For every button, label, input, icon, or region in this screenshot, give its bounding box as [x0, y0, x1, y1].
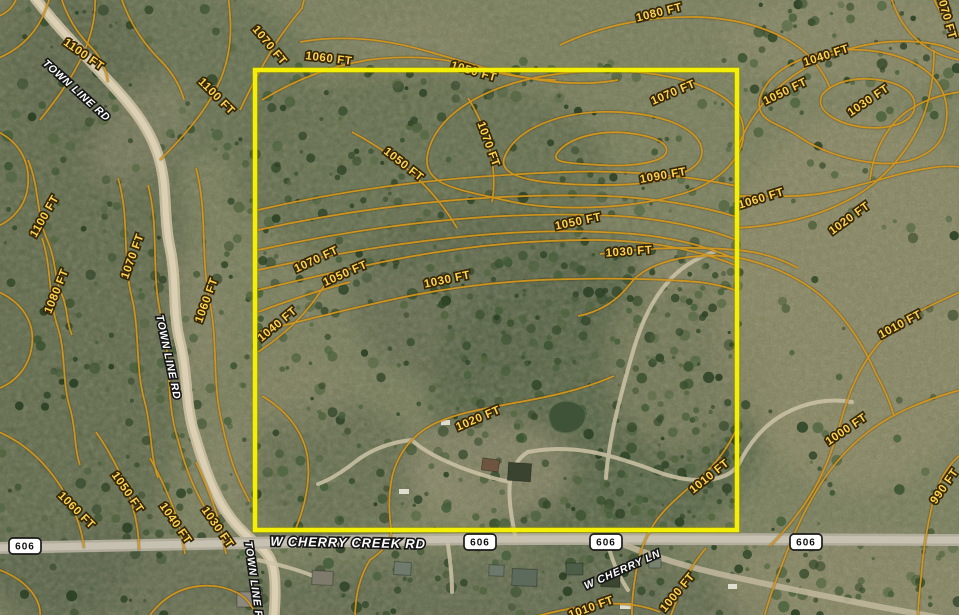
tree [158, 381, 165, 388]
tree [286, 484, 293, 491]
tree [458, 397, 467, 406]
tree [635, 496, 644, 505]
tree [535, 315, 540, 320]
tree [615, 509, 625, 519]
tree [126, 455, 130, 459]
tree [156, 395, 164, 403]
tree [711, 405, 715, 409]
tree [324, 90, 329, 95]
tree [744, 88, 748, 92]
tree [408, 120, 414, 126]
tree [396, 412, 400, 416]
tree [361, 349, 368, 356]
tree [438, 300, 446, 308]
tree [571, 507, 575, 511]
tree [514, 294, 519, 299]
tree [159, 276, 167, 284]
tree [810, 16, 819, 25]
tree [592, 352, 599, 359]
tree [287, 181, 292, 186]
tree [708, 513, 715, 520]
tree [827, 482, 832, 487]
tree [359, 404, 364, 409]
tree [401, 502, 404, 505]
tree [685, 185, 689, 189]
tree [728, 331, 731, 334]
tree [414, 495, 423, 504]
tree [380, 161, 384, 165]
tree [808, 221, 817, 230]
tree [816, 578, 827, 589]
tree [4, 241, 7, 244]
tree [810, 461, 813, 464]
tree [633, 322, 639, 328]
tree [514, 423, 520, 429]
trailer [399, 489, 409, 494]
tree [222, 152, 230, 160]
tree [368, 148, 374, 154]
tree [529, 338, 538, 347]
tree [140, 319, 150, 329]
tree [807, 159, 814, 166]
tree [319, 382, 326, 389]
tree [510, 586, 521, 597]
tree [619, 554, 622, 557]
tree [379, 513, 390, 524]
tree [147, 514, 153, 520]
route-shield-number: 606 [796, 538, 816, 549]
tree [120, 595, 127, 602]
tree [33, 201, 37, 205]
tree [547, 139, 554, 146]
tree [631, 505, 641, 515]
tree [350, 203, 355, 208]
tree [711, 544, 717, 550]
tree [319, 117, 323, 121]
tree [702, 446, 710, 454]
tree [809, 451, 818, 460]
tree [245, 502, 249, 506]
tree [65, 298, 75, 308]
tree [714, 101, 717, 104]
tree [923, 54, 930, 61]
tree [424, 492, 428, 496]
tree [41, 515, 48, 522]
tree [394, 587, 401, 594]
tree [224, 241, 234, 251]
tree [411, 511, 421, 521]
tree [484, 269, 491, 276]
tree [552, 325, 562, 335]
tree [750, 84, 759, 93]
tree [697, 99, 707, 109]
tree [799, 569, 809, 579]
tree [143, 529, 149, 535]
tree [793, 24, 797, 28]
tree [615, 488, 624, 497]
tree [717, 499, 722, 504]
tree [456, 407, 459, 410]
tree [819, 162, 826, 169]
tree [596, 191, 607, 202]
tree [224, 417, 232, 425]
tree [129, 599, 132, 602]
tree [393, 264, 398, 269]
tree [338, 412, 345, 419]
map-viewport[interactable]: 1100 FT1100 FT1070 FT1060 FT1050 FT1080 … [0, 0, 959, 615]
tree [592, 253, 596, 257]
tree [479, 587, 487, 595]
tree [559, 176, 565, 182]
tree [284, 195, 292, 203]
tree [540, 251, 547, 258]
tree [661, 360, 666, 365]
tree [338, 517, 344, 523]
tree [441, 503, 451, 513]
tree [348, 152, 355, 159]
tree [817, 522, 820, 525]
tree [930, 111, 939, 120]
tree [780, 30, 783, 33]
tree [708, 410, 713, 415]
tree [193, 271, 200, 278]
tree [224, 251, 230, 257]
tree [518, 314, 525, 321]
tree [467, 293, 473, 299]
tree [692, 427, 700, 435]
tree [28, 112, 37, 121]
tree [530, 245, 535, 250]
tree [560, 242, 565, 247]
tree [701, 495, 706, 500]
tree [695, 291, 703, 299]
trailer [728, 584, 737, 589]
tree [496, 521, 501, 526]
tree [393, 445, 397, 449]
tree [100, 205, 107, 212]
tree [476, 399, 485, 408]
tree [744, 546, 749, 551]
route-shield: 606 [9, 538, 41, 554]
tree [687, 272, 692, 277]
tree [437, 112, 447, 122]
tree [633, 365, 640, 372]
tree [656, 578, 664, 586]
tree [114, 21, 117, 24]
tree [383, 197, 389, 203]
tree [56, 369, 64, 377]
tree [803, 553, 808, 558]
tree [400, 301, 408, 309]
tree [945, 216, 952, 223]
tree [338, 106, 347, 115]
tree [451, 81, 461, 91]
tree [398, 173, 405, 180]
tree [872, 557, 875, 560]
tree [328, 407, 338, 417]
tree [109, 24, 113, 28]
tree [649, 202, 652, 205]
tree [49, 563, 56, 570]
tree [712, 272, 719, 279]
tree [646, 355, 650, 359]
tree [481, 356, 489, 364]
tree [614, 339, 620, 345]
tree [532, 380, 542, 390]
building [489, 565, 504, 577]
tree [120, 229, 129, 238]
building [394, 562, 412, 576]
tree [788, 9, 793, 14]
tree [309, 362, 313, 366]
tree [130, 399, 134, 403]
tree [738, 53, 748, 63]
tree [708, 304, 717, 313]
tree [718, 288, 725, 295]
tree [416, 402, 421, 407]
tree [572, 360, 577, 365]
tree [206, 383, 216, 393]
tree [241, 383, 247, 389]
tree [408, 578, 413, 583]
route-shield-number: 606 [470, 538, 490, 549]
tree [518, 251, 528, 261]
tree [185, 101, 190, 106]
tree [627, 422, 637, 432]
tree [31, 191, 34, 194]
tree [702, 265, 707, 270]
tree [362, 272, 372, 282]
tree [768, 409, 772, 413]
tree [441, 311, 449, 319]
tree [234, 202, 245, 213]
tree [501, 551, 511, 561]
tree [329, 172, 333, 176]
tree [462, 341, 471, 350]
tree [862, 168, 868, 174]
tree [627, 502, 631, 506]
building [312, 571, 333, 586]
tree [138, 293, 145, 300]
tree [467, 429, 475, 437]
tree [588, 305, 594, 311]
tree [0, 558, 4, 562]
tree [651, 149, 658, 156]
tree [597, 496, 606, 505]
tree [881, 225, 886, 230]
tree [626, 443, 637, 454]
tree [92, 118, 96, 122]
tree [373, 572, 382, 581]
tree [558, 596, 562, 600]
tree [722, 58, 727, 63]
tree [613, 445, 620, 452]
tree [189, 334, 198, 343]
tree [817, 466, 822, 471]
tree [134, 462, 139, 467]
tree [176, 488, 186, 498]
tree [671, 294, 680, 303]
tree [609, 173, 617, 181]
tree [522, 82, 527, 87]
tree [522, 293, 525, 296]
tree [298, 132, 307, 141]
tree [85, 117, 94, 126]
tree [665, 312, 670, 317]
tree [552, 364, 559, 371]
tree [7, 278, 16, 287]
tree [729, 177, 733, 181]
tree [557, 94, 561, 98]
tree [376, 469, 385, 478]
tree [136, 365, 145, 374]
tree [602, 288, 608, 294]
tree [835, 586, 844, 595]
tree [272, 141, 282, 151]
tree [581, 316, 591, 326]
tree [656, 415, 664, 423]
tree [546, 300, 553, 307]
tree [242, 160, 249, 167]
tree [230, 473, 233, 476]
map-canvas[interactable]: 1100 FT1100 FT1070 FT1060 FT1050 FT1080 … [0, 0, 959, 615]
tree [211, 128, 214, 131]
tree [409, 225, 417, 233]
tree [637, 586, 646, 595]
tree [633, 315, 642, 324]
tree [335, 175, 341, 181]
tree [73, 357, 78, 362]
tree [831, 171, 839, 179]
tree [664, 390, 673, 399]
tree [541, 570, 544, 573]
tree [670, 347, 678, 355]
tree [649, 590, 655, 596]
tree [548, 252, 558, 262]
tree [778, 601, 789, 612]
tree [859, 587, 865, 593]
tree [315, 302, 323, 310]
tree [26, 7, 32, 13]
tree [405, 86, 409, 90]
tree [274, 254, 279, 259]
tree [893, 435, 901, 443]
tree [128, 138, 133, 143]
tree [722, 483, 732, 493]
tree [473, 585, 479, 591]
tree [44, 392, 51, 399]
tree [838, 2, 845, 9]
tree [499, 489, 505, 495]
tree [420, 78, 426, 84]
tree [759, 46, 766, 53]
tree [671, 455, 678, 462]
tree [296, 305, 301, 310]
tree [539, 406, 543, 410]
tree [703, 372, 714, 383]
tree [129, 83, 133, 87]
tree [297, 496, 304, 503]
tree [214, 147, 218, 151]
tree [886, 107, 894, 115]
tree [84, 364, 90, 370]
tree [790, 98, 800, 108]
tree [238, 137, 242, 141]
tree [6, 527, 12, 533]
tree [540, 189, 550, 199]
tree [771, 528, 774, 531]
tree [950, 231, 959, 240]
tree [472, 513, 479, 520]
tree [99, 360, 103, 364]
tree [383, 485, 390, 492]
tree [272, 430, 279, 437]
tree [696, 329, 701, 334]
tree [741, 400, 750, 409]
tree [691, 304, 698, 311]
tree [112, 514, 121, 523]
tree [669, 209, 672, 212]
tree [156, 552, 163, 559]
tree [753, 127, 763, 137]
tree [223, 143, 231, 151]
tree [95, 341, 98, 344]
tree [101, 213, 108, 220]
tree [370, 156, 379, 165]
tree [412, 503, 416, 507]
tree [98, 461, 102, 465]
tree [684, 390, 689, 395]
tree [542, 460, 550, 468]
tree [574, 476, 583, 485]
tree [482, 431, 489, 438]
tree [166, 129, 175, 138]
tree [521, 355, 526, 360]
tree [109, 333, 114, 338]
tree [728, 354, 732, 358]
tree [423, 209, 431, 217]
tree [98, 5, 109, 16]
tree [600, 480, 610, 490]
tree [693, 407, 699, 413]
tree [360, 197, 366, 203]
tree [580, 237, 589, 246]
tree [811, 276, 818, 283]
tree [107, 201, 113, 207]
tree [768, 106, 773, 111]
tree [830, 12, 834, 16]
tree [895, 70, 900, 75]
tree [571, 146, 579, 154]
tree [700, 285, 705, 290]
tree [458, 450, 468, 460]
tree [391, 551, 399, 559]
tree [60, 157, 66, 163]
tree [719, 421, 729, 431]
tree [76, 312, 82, 318]
tree [572, 295, 579, 302]
tree [435, 575, 441, 581]
tree [315, 455, 323, 463]
tree [568, 581, 571, 584]
tree [132, 164, 140, 172]
tree [420, 130, 429, 139]
tree [4, 162, 13, 171]
tree [388, 346, 393, 351]
tree [546, 335, 551, 340]
tree [368, 357, 379, 368]
tree [17, 78, 28, 89]
